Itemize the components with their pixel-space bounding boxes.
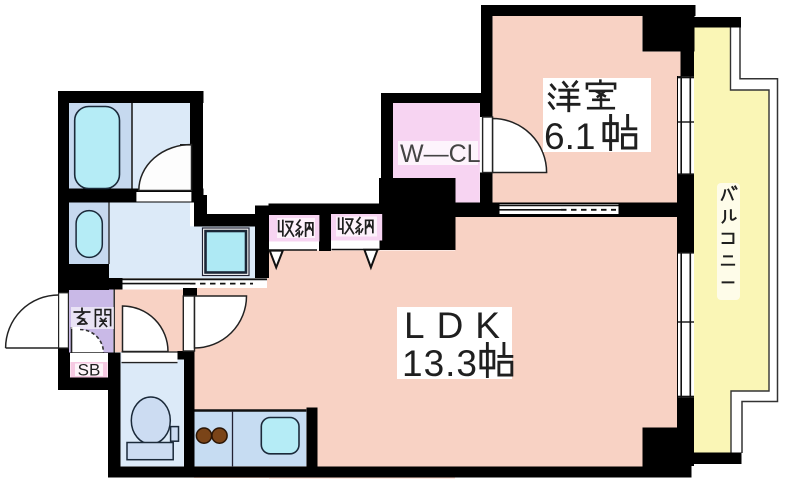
- svg-text:SB: SB: [78, 361, 101, 380]
- svg-text:6.1: 6.1: [544, 116, 595, 157]
- svg-text:LDK: LDK: [404, 305, 512, 346]
- svg-text:W—CL: W—CL: [400, 140, 481, 168]
- svg-text:13.3: 13.3: [402, 343, 478, 384]
